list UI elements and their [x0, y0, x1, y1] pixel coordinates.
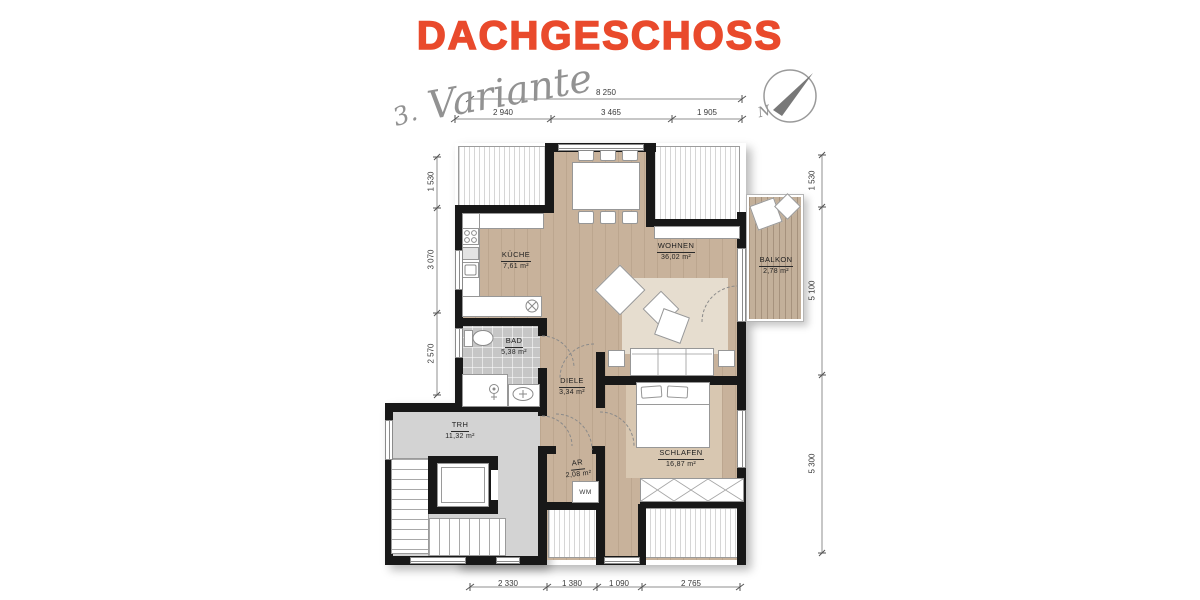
window-stairwell-bottom-2 [496, 557, 520, 564]
window-bedroom [737, 410, 746, 468]
stairs-bottom-run [428, 518, 506, 556]
page-title: DACHGESCHOSS [417, 14, 783, 59]
sofa-side-table [718, 350, 735, 367]
roof-slope-bottom-right [644, 508, 744, 558]
dining-chair [622, 211, 638, 224]
washing-machine-label: WM [579, 489, 592, 496]
sofa-side-table [608, 350, 625, 367]
window-bedroom-niche [604, 557, 640, 564]
bed-blanket-line [637, 404, 709, 405]
sofa [630, 348, 714, 376]
variant-word: Variante [424, 56, 595, 129]
window-stairwell-bottom [410, 557, 466, 564]
variant-number: 3. [389, 97, 421, 132]
bed-pillow [667, 385, 689, 398]
dim-right-1: 1 530 [808, 155, 817, 207]
room-label-bad: BAD 5,38 m² [474, 336, 554, 358]
elevator-car-inner [441, 467, 485, 503]
dim-left-3: 2 570 [427, 328, 436, 380]
north-compass-icon [755, 62, 827, 132]
roof-slope-bottom-left [548, 508, 602, 558]
wall-segment [538, 318, 547, 336]
dim-bottom-2: 1 380 [546, 579, 598, 588]
stairs-left-run [391, 458, 429, 554]
room-label-kueche: KÜCHE 7,61 m² [476, 250, 556, 272]
washing-machine: WM [572, 481, 599, 503]
wall-segment [455, 318, 540, 326]
wall-segment [545, 143, 554, 213]
dim-left-2: 3 070 [427, 234, 436, 286]
room-label-diele: DIELE 3,34 m² [532, 376, 612, 398]
kitchen-cooktop [462, 228, 479, 245]
dim-top-seg-2: 3 465 [585, 108, 637, 117]
dim-right-2: 5 100 [808, 265, 817, 317]
elevator-door-gap [491, 470, 498, 500]
wall-segment [455, 205, 550, 213]
floor-plan: DACHGESCHOSS 3. Variante N [0, 0, 1200, 600]
dim-bottom-1: 2 330 [482, 579, 534, 588]
dim-top-seg-3: 1 905 [681, 108, 733, 117]
room-label-balkon: BALKON 2,78 m² [746, 255, 806, 277]
roof-slope-top-left [458, 146, 546, 208]
wall-segment [546, 446, 556, 454]
dim-left-1: 1 530 [427, 156, 436, 208]
wardrobe [640, 478, 744, 502]
dim-bottom-3: 1 090 [593, 579, 645, 588]
wall-segment [538, 412, 547, 416]
room-label-schlafen: SCHLAFEN 16,87 m² [641, 448, 721, 470]
shower [462, 374, 508, 407]
window-kitchen [455, 250, 463, 290]
dining-chair [600, 211, 616, 224]
window-stairwell-left [385, 420, 393, 460]
dim-bottom-4: 2 765 [665, 579, 717, 588]
dim-right-3: 5 300 [808, 438, 817, 490]
roof-slope-top-right [654, 146, 740, 222]
room-label-trh: TRH 11,32 m² [420, 420, 500, 442]
bed-pillow [641, 385, 663, 398]
sideboard [654, 226, 740, 239]
dining-table [572, 162, 640, 210]
window-bath [455, 328, 463, 358]
room-label-wohnen: WOHNEN 36,02 m² [636, 241, 716, 263]
balcony-door-opening [737, 248, 746, 322]
wall-segment [646, 143, 655, 227]
kitchen-counter-bottom [462, 296, 542, 317]
window-dormer-top [558, 144, 644, 151]
toilet-tank [464, 330, 473, 347]
dining-chair [578, 211, 594, 224]
